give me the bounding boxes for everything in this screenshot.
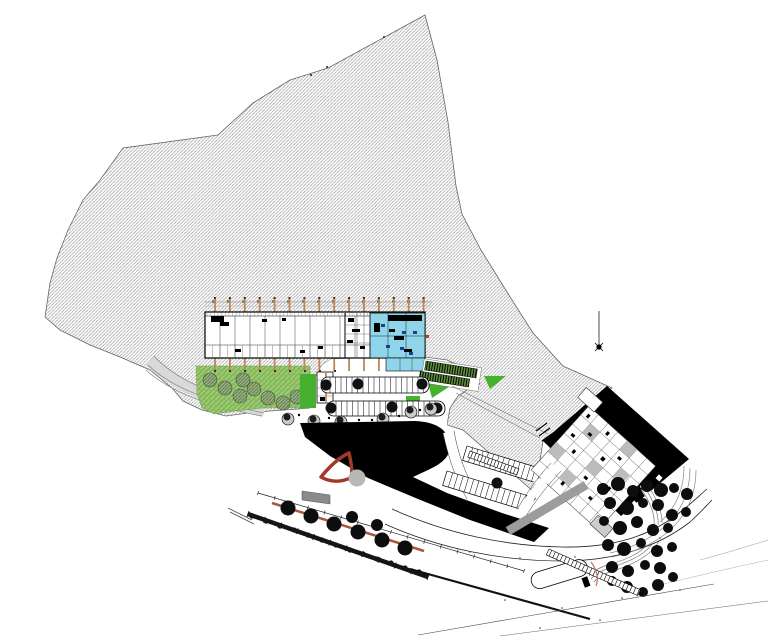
south-wing-mark [320, 397, 325, 401]
gray-planter-box [302, 491, 330, 504]
utility-pole [595, 311, 603, 351]
rect [529, 557, 589, 590]
parking-row-1 [321, 377, 430, 393]
pool-lower-rooms [386, 358, 425, 371]
gray-play-circle [349, 470, 366, 487]
column-top-dots [214, 297, 425, 299]
turning-island [529, 557, 589, 590]
contour-line [700, 540, 768, 560]
site-plan-page [0, 0, 768, 637]
parked-car [581, 576, 590, 587]
rect [321, 377, 429, 393]
contour-line [660, 560, 768, 585]
red-accent-mark [426, 335, 429, 338]
site-plan-drawing [0, 0, 768, 637]
